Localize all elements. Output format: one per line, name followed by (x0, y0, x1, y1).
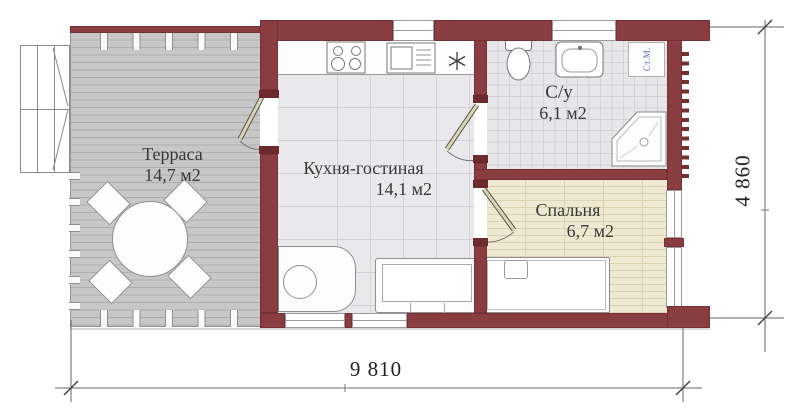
bottom-wall (407, 313, 710, 328)
kitchen-left-wall (260, 154, 278, 313)
right-wall-corner (667, 306, 710, 328)
sofa-seat (382, 264, 472, 302)
bed-pillow-icon (504, 260, 528, 279)
bathroom-window-top (552, 20, 616, 41)
kitchen-counter (278, 41, 474, 75)
floor-plan: Ст.М. (0, 0, 800, 417)
room-area: 14,1 м2 (291, 179, 436, 200)
kitchen-left-wall (260, 20, 278, 90)
terrace-railing-top (78, 33, 256, 50)
bedroom-window-right-2 (666, 247, 682, 308)
right-wall-mullion (664, 238, 684, 247)
room-area: 6,7 м2 (522, 221, 614, 242)
top-wall (434, 20, 552, 41)
door-jamb (473, 180, 488, 188)
door-jamb (473, 155, 488, 163)
sofa-icon (375, 258, 478, 313)
washing-machine-label: Ст.М. (642, 41, 652, 77)
kitchen-stool-icon (283, 265, 317, 299)
bedroom-label: Спальня 6,7 м2 (522, 200, 614, 242)
top-wall (260, 20, 393, 41)
right-wall-serration (682, 52, 689, 183)
room-name: С/у (528, 82, 590, 103)
bed-icon (483, 257, 610, 313)
kitchen-window-bottom-1 (285, 313, 345, 328)
room-name: Терраса (105, 144, 240, 165)
terrace-railing-left (69, 168, 80, 313)
width-dimension-text: 9 810 (340, 357, 412, 382)
kitchen-window-top (393, 20, 434, 41)
sofa-cushion-line (410, 303, 411, 313)
room-area: 6,1 м2 (528, 103, 590, 124)
terrace-top-wall (70, 26, 262, 33)
terrace-label: Терраса 14,7 м2 (105, 144, 240, 186)
room-name: Кухня-гостиная (291, 158, 436, 179)
door-jamb (473, 238, 488, 246)
terrace-railing-bottom (78, 310, 256, 327)
door-jamb (259, 90, 279, 98)
bathroom-label: С/у 6,1 м2 (528, 82, 590, 124)
kitchen-label: Кухня-гостиная 14,1 м2 (291, 158, 436, 200)
bottom-wall (260, 313, 285, 328)
bathroom-left-wall (474, 40, 487, 95)
stair-landing-line (21, 109, 69, 110)
bedroom-window-right-1 (666, 190, 682, 238)
door-jamb (473, 95, 488, 103)
right-wall (667, 40, 682, 190)
door-jamb (259, 146, 279, 154)
top-wall (616, 20, 710, 41)
bedroom-left-wall (474, 246, 487, 313)
room-area: 14,7 м2 (105, 165, 240, 186)
entry-stairs (20, 45, 70, 173)
height-dimension-text: 4 860 (731, 143, 756, 219)
room-name: Спальня (522, 200, 614, 221)
bottom-wall-mullion (345, 313, 352, 328)
kitchen-window-bottom-2 (352, 313, 407, 328)
sofa-cushion-line (444, 303, 445, 313)
bathroom-bedroom-wall (474, 169, 667, 180)
